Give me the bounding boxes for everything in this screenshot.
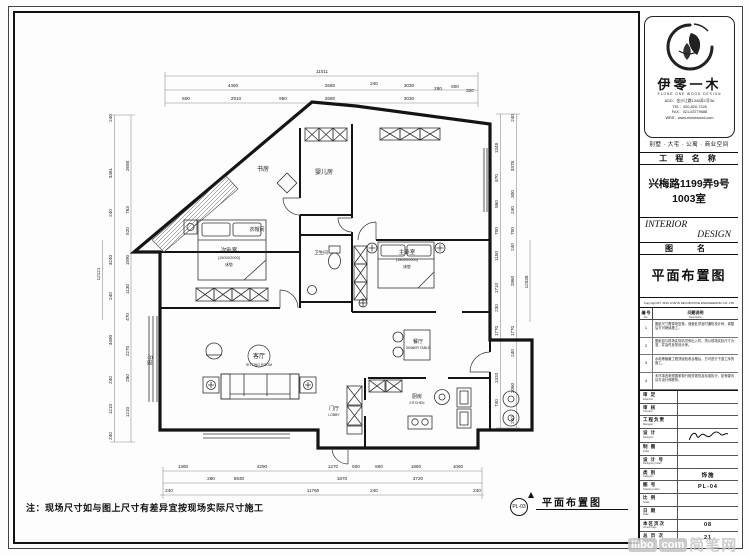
dim-label: 1360 (178, 464, 189, 469)
dim-label: 600 (451, 84, 459, 89)
dim-label: 240 (510, 114, 515, 122)
dim-label: 240 (108, 292, 113, 300)
dim-label: 240 (510, 416, 515, 424)
project-name-line1: 兴梅路1199弄9号 (640, 177, 738, 192)
dim-label: 240 (510, 206, 515, 214)
room-label: [1800X2000] (396, 258, 418, 262)
dim-label: 4290 (257, 464, 268, 469)
dim-label: 280 (434, 86, 442, 91)
sign-rows: 审 定Examine审 核Checker工程负责Manager设 计Design… (640, 390, 738, 544)
brand-name-en: ELONE ONE WOOD DESIGN (645, 92, 734, 97)
room-label: 客厅 (253, 352, 265, 360)
dim-label: 2270 (125, 345, 130, 356)
dim-label: 1210 (125, 406, 130, 417)
note-row: 1图纸尺寸需现场复核，误差处须及时通知设计师，调整后方可继续施工。 (640, 320, 738, 338)
dim-label: 870 (494, 174, 499, 182)
room-label: 床垫 (403, 264, 411, 269)
dim-label: 1770 (510, 325, 515, 336)
dim-label: 600 (352, 464, 360, 469)
dim-label: 11011 (316, 69, 329, 74)
notes-table: 编 号 No. 问题说明 Description 1图纸尺寸需现场复核，误差处须… (640, 307, 738, 390)
dim-label: 1348 (494, 142, 499, 153)
room-label: 厨房 (412, 393, 422, 400)
dim-label: 12038 (524, 275, 529, 288)
sign-row: 图 号Drawing IndexPL-04 (640, 481, 738, 494)
site-watermark: IIIbo com 简笔网 (628, 534, 737, 555)
dim-label: 2910 (231, 96, 242, 101)
dim-label: 3461 (108, 167, 113, 178)
dim-label: 1130 (125, 284, 130, 294)
copyright-line: Copyright BY JING LIVE'IN DECORATIVE ENG… (640, 297, 738, 307)
dim-label: 3030 (404, 83, 415, 88)
dim-label: 11760 (307, 488, 320, 493)
interior-word: INTERIOR (645, 220, 687, 230)
closet-hatch (152, 176, 238, 252)
room-label: 婴儿房 (315, 168, 333, 176)
note-row: 4未尽事宜参照国家现行相关规范及标准执行，如有疑问请与设计师联系。 (640, 373, 738, 391)
dim-label: 4460 (228, 83, 239, 88)
dim-label: 800 (375, 464, 383, 469)
notes-desc-header: 问题说明 Description (653, 308, 738, 319)
dim-label: 1770 (494, 325, 499, 336)
project-name: 兴梅路1199弄9号 1003室 (640, 165, 738, 217)
dim-label: 240 (108, 114, 113, 122)
site-note: 注：现场尺寸如与图上尺寸有差异宜按现场实际尺寸施工 (26, 501, 264, 514)
room-label: 书房 (257, 165, 269, 173)
dim-label: 740 (494, 399, 499, 407)
dim-label: 470 (125, 313, 130, 321)
sign-row: 日 期Date (640, 507, 738, 520)
room-label: 卫生间 (314, 249, 328, 256)
drawing-sheet: 1101144602680240303028060032060029109502… (0, 0, 750, 556)
dim-label: 280 (125, 374, 130, 382)
dim-label: 240 (370, 488, 378, 493)
dim-label: 240 (370, 81, 378, 86)
dim-label: 600 (182, 96, 190, 101)
dim-label: 3378 (510, 160, 515, 171)
dim-label: 950 (279, 96, 287, 101)
room-label: KITCHEN (410, 401, 425, 405)
dim-label: 3720 (413, 476, 424, 481)
brand-name-cn: 伊零一木 (645, 78, 734, 92)
sign-row: 本区页次Amed Page08 (640, 520, 738, 533)
dim-label: 230 (494, 304, 499, 312)
dim-label: 1590 (125, 254, 130, 265)
dim-label: 2680 (325, 83, 336, 88)
room-label: 主卧室 (399, 248, 416, 256)
dim-label: 320 (466, 88, 474, 93)
dim-label: 1860 (411, 464, 422, 469)
brand-web: WEB：www.elonewood.com (645, 116, 734, 122)
dim-label: 240 (108, 209, 113, 217)
floor-plan: 1101144602680240303028060032060029109502… (90, 40, 635, 516)
sign-row: 制 图Draw (640, 443, 738, 456)
note-row: 2图纸如与现场实际情况有出入时，须以现场实际尺寸为准，并及时反馈设计师。 (640, 338, 738, 356)
room-label: 衣帽间 (249, 226, 264, 233)
drawing-name-header: 图 名 (640, 242, 738, 255)
sheet-title-underline (536, 509, 628, 510)
sheet-title-label: 平面布置图 (542, 494, 602, 509)
dim-label: 5930 (234, 476, 245, 481)
sign-row: 审 核Checker (640, 404, 738, 417)
plan-walls (134, 102, 532, 448)
sign-row: 设 计 号Designing Index (640, 456, 738, 469)
watermark-pill-1: IIIbo (628, 538, 657, 552)
dim-label: 763 (125, 206, 130, 214)
notes-header: 编 号 No. 问题说明 Description (640, 308, 738, 320)
room-label: 床垫 (225, 262, 233, 267)
business-scope: 别墅 · 大宅 · 公寓 · 商业空间 (640, 139, 738, 152)
dim-label: 860 (494, 200, 499, 208)
dim-label: 240 (108, 432, 113, 440)
dim-label: 2860 (510, 275, 515, 286)
dim-label: 280 (207, 476, 215, 481)
drawing-name: 平面布置图 (640, 255, 738, 297)
sign-row: 审 定Examine (640, 391, 738, 404)
room-label: LOBBY (328, 413, 340, 417)
dim-label: 1870 (337, 476, 348, 481)
brand-contact: ADD：金沙江路1340弄1号3A TEL：400-820-7226 FAX：0… (645, 99, 734, 121)
dimension-chain-lines (103, 72, 531, 499)
dim-label: 2680 (325, 96, 336, 101)
dim-label: 240 (165, 488, 173, 493)
dim-label: 240 (108, 376, 113, 384)
project-name-line2: 1003室 (640, 192, 738, 207)
dim-label: 1150 (494, 251, 499, 261)
furniture (149, 128, 519, 438)
room-label: 门厅 (329, 405, 339, 412)
dim-label: 700 (510, 227, 515, 235)
dim-label: 3030 (404, 96, 415, 101)
dim-label: 1710 (494, 282, 499, 293)
notes-no-header: 编 号 No. (640, 308, 653, 319)
room-label: [1500X2000] (218, 256, 240, 260)
dim-label: 1320 (494, 372, 499, 383)
sheet-flag-icon (528, 492, 534, 498)
project-name-header: 工 程 名 称 (640, 152, 738, 165)
room-label: SITTING ROOM (246, 363, 272, 367)
interior-design-mark: INTERIOR DESIGN (640, 217, 738, 242)
room-label: DINNER TABLE (406, 346, 431, 350)
dim-label: 3240 (108, 254, 113, 265)
sign-row: 类 别Category饰施 (640, 469, 738, 482)
dim-label: 12121 (96, 267, 101, 280)
dim-label: 1060 (453, 464, 464, 469)
dim-label: 700 (494, 227, 499, 235)
dim-label: 2060 (510, 382, 515, 393)
company-logo-box: 伊零一木 ELONE ONE WOOD DESIGN ADD：金沙江路1340弄… (644, 16, 735, 138)
dim-label: 2658 (125, 160, 130, 171)
designer-signature (686, 427, 729, 444)
sign-row: 比 例Scale (640, 494, 738, 507)
design-word: DESIGN (697, 230, 731, 240)
dim-label: 3490 (108, 334, 113, 345)
title-block-panel: 伊零一木 ELONE ONE WOOD DESIGN ADD：金沙江路1340弄… (638, 11, 738, 544)
dim-label: 240 (473, 488, 481, 493)
leaf-logo-icon (664, 21, 716, 73)
dim-label: 1210 (108, 403, 113, 414)
sheet-number-bubble: PL-03 (510, 498, 528, 516)
watermark-cn: 简笔网 (689, 534, 737, 555)
room-label: 餐厅 (413, 338, 423, 345)
dim-label: 520 (125, 227, 130, 235)
room-label: 阳台 (147, 355, 154, 365)
notes-rows: 1图纸尺寸需现场复核，误差处须及时通知设计师，调整后方可继续施工。2图纸如与现场… (640, 320, 738, 390)
dim-label: 1270 (328, 464, 339, 469)
dim-label: 240 (510, 349, 515, 357)
dim-label: 240 (510, 243, 515, 251)
watermark-pill-2: com (659, 538, 688, 552)
room-label: 次卧室 (221, 246, 238, 254)
note-row: 3水电等隐蔽工程须经验收合格后，方可进行下道工序的施工。 (640, 355, 738, 373)
dim-label: 300 (510, 190, 515, 198)
door-swings (280, 198, 490, 464)
sign-row: 设 计Designer (640, 429, 738, 443)
